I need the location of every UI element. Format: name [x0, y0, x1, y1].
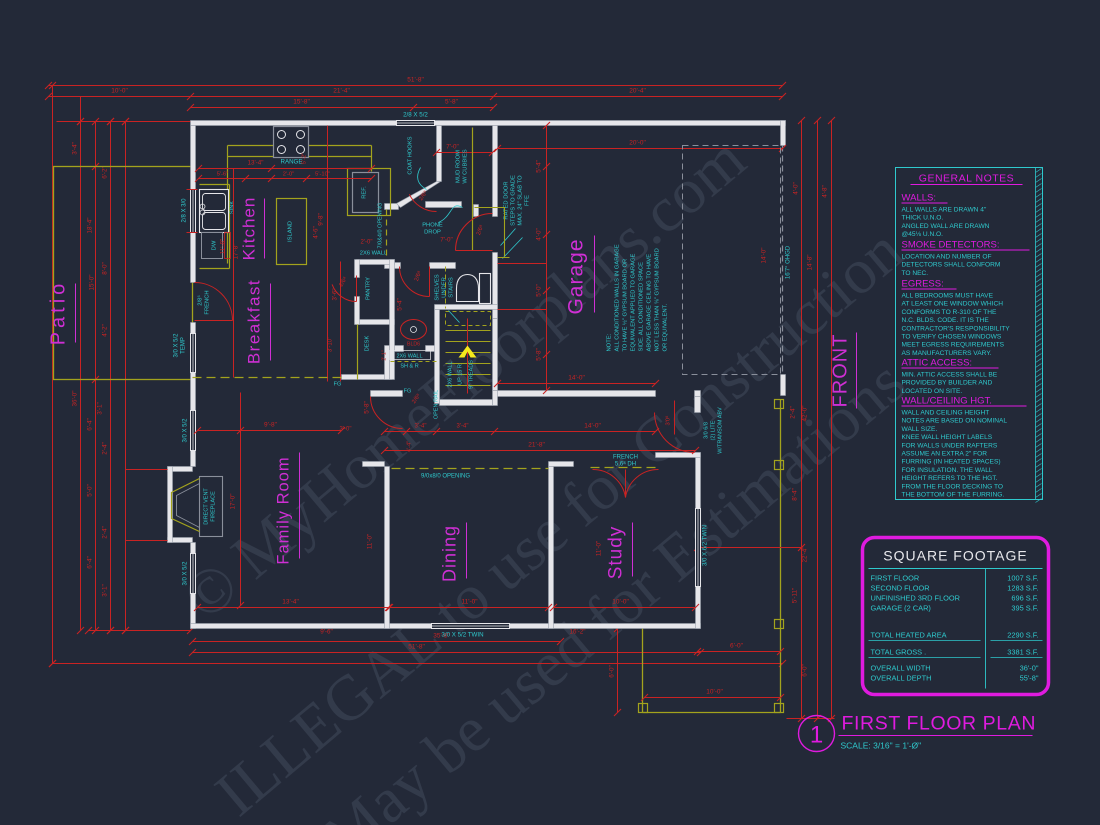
svg-text:TO VERIFY CHOSEN WINDOWS: TO VERIFY CHOSEN WINDOWS [902, 334, 1002, 341]
svg-text:3'-4": 3'-4" [457, 424, 469, 430]
svg-text:2X6 WALL: 2X6 WALL [396, 354, 422, 360]
svg-text:EQUIVALENT APPLIED TO GARAGE: EQUIVALENT APPLIED TO GARAGE [631, 254, 637, 352]
svg-text:9" TREADS: 9" TREADS [469, 360, 475, 389]
svg-text:51'-8": 51'-8" [408, 644, 425, 651]
svg-text:5'-8": 5'-8" [536, 348, 543, 361]
svg-text:2'-4": 2'-4" [102, 526, 109, 539]
svg-text:4'-8": 4'-8" [822, 185, 829, 198]
svg-text:EGRESS:: EGRESS: [902, 279, 944, 290]
svg-text:NOT LESS THAN ⅝" GYPSUM BOARD: NOT LESS THAN ⅝" GYPSUM BOARD [655, 248, 661, 351]
svg-text:5'-6": 5'-6" [217, 172, 229, 178]
svg-text:3/0 X 5/2: 3/0 X 5/2 [183, 418, 189, 443]
svg-text:(2) LITE: (2) LITE [711, 420, 717, 440]
svg-text:55'-8": 55'-8" [1020, 674, 1039, 683]
svg-text:9'-6": 9'-6" [320, 629, 333, 636]
svg-text:4'-6": 4'-6" [313, 226, 320, 239]
svg-text:ANGLED WALL ARE DRAWN: ANGLED WALL ARE DRAWN [902, 223, 990, 230]
svg-text:CONTRACTOR'S RESPONSIBILITY: CONTRACTOR'S RESPONSIBILITY [902, 325, 1011, 332]
svg-text:GENERAL NOTES: GENERAL NOTES [919, 173, 1014, 185]
svg-text:COAT HOOKS: COAT HOOKS [408, 136, 414, 174]
svg-text:11'-0": 11'-0" [461, 599, 478, 606]
svg-text:FRONT: FRONT [830, 334, 852, 408]
svg-text:FIRST FLOOR: FIRST FLOOR [871, 574, 920, 583]
svg-text:9'-8": 9'-8" [318, 213, 325, 226]
svg-text:6'-4": 6'-4" [87, 418, 94, 431]
svg-text:3'-4": 3'-4" [72, 142, 79, 155]
svg-text:TO NEC.: TO NEC. [902, 270, 929, 277]
svg-text:OR EQUIVALENT.: OR EQUIVALENT. [663, 304, 669, 352]
svg-text:7/0&4/0 OPENING: 7/0&4/0 OPENING [378, 203, 384, 249]
svg-text:16'7° OHGD: 16'7° OHGD [786, 245, 792, 279]
svg-text:UP 15 R: UP 15 R [458, 364, 464, 385]
svg-text:LOCATION AND NUMBER OF: LOCATION AND NUMBER OF [902, 254, 992, 261]
svg-text:LOCATED ON SITE.: LOCATED ON SITE. [902, 388, 963, 395]
svg-text:1283 S.F.: 1283 S.F. [1007, 584, 1038, 593]
svg-text:17'-8": 17'-8" [233, 243, 240, 259]
svg-text:THICK U.N.O.: THICK U.N.O. [902, 215, 944, 222]
svg-text:6'-0": 6'-0" [730, 643, 744, 650]
svg-text:DETECTORS SHALL CONFORM: DETECTORS SHALL CONFORM [902, 262, 1001, 269]
svg-text:395 S.F.: 395 S.F. [1011, 604, 1038, 613]
svg-text:HEIGHT REFERS TO THE HGT.: HEIGHT REFERS TO THE HGT. [902, 475, 998, 482]
svg-text:4'-4": 4'-4" [407, 441, 413, 453]
svg-text:2290 S.F.: 2290 S.F. [1007, 631, 1038, 640]
svg-text:OPEN RAIL: OPEN RAIL [434, 390, 440, 419]
svg-text:SECOND FLOOR: SECOND FLOOR [871, 584, 930, 593]
svg-text:15'-8": 15'-8" [293, 99, 310, 106]
svg-text:STEPS TO GRADE: STEPS TO GRADE [511, 175, 517, 226]
svg-text:3/0 X 5/2: 3/0 X 5/2 [183, 561, 189, 586]
svg-text:TO HAVE ½" GYPSUM BOARD OR: TO HAVE ½" GYPSUM BOARD OR [622, 259, 629, 352]
svg-text:NOTES ARE BASED ON NOMINAL: NOTES ARE BASED ON NOMINAL [902, 418, 1008, 425]
svg-text:10'-0": 10'-0" [612, 599, 629, 606]
svg-text:51'-8": 51'-8" [407, 77, 424, 84]
svg-text:8'-0": 8'-0" [102, 262, 109, 275]
svg-text:MUD ROOM: MUD ROOM [456, 150, 462, 183]
svg-text:SINK: SINK [230, 201, 236, 215]
svg-text:PROVIDED BY BUILDER AND: PROVIDED BY BUILDER AND [902, 380, 993, 387]
svg-text:Garage: Garage [565, 238, 588, 314]
svg-text:6'-0": 6'-0" [802, 664, 809, 677]
svg-text:8'-4": 8'-4" [792, 488, 799, 501]
svg-text:5'-8": 5'-8" [445, 99, 459, 106]
svg-text:FROM THE FLOOR DECKING TO: FROM THE FLOOR DECKING TO [902, 483, 1003, 490]
svg-text:SHELVES: SHELVES [435, 274, 441, 300]
svg-text:DESK: DESK [365, 335, 371, 351]
svg-text:FFE: FFE [525, 195, 531, 206]
svg-text:2X6 WALL: 2X6 WALL [360, 251, 388, 257]
svg-text:DW: DW [212, 240, 218, 250]
svg-text:5'-11": 5'-11" [792, 588, 799, 604]
svg-text:14'-0": 14'-0" [568, 375, 585, 382]
svg-text:AT LEAST ONE WINDOW WHICH: AT LEAST ONE WINDOW WHICH [902, 301, 1004, 308]
svg-text:FIREPLACE: FIREPLACE [211, 491, 217, 522]
svg-text:5'-0": 5'-0" [536, 284, 543, 297]
svg-text:ABOVE GARAGE CEILING TO HAVE: ABOVE GARAGE CEILING TO HAVE [647, 254, 653, 352]
svg-text:11'-0": 11'-0" [596, 541, 603, 557]
svg-text:11'-8": 11'-8" [220, 239, 227, 255]
svg-text:3'-10": 3'-10" [328, 337, 334, 352]
svg-text:3/0 X 5/2: 3/0 X 5/2 [174, 333, 180, 358]
svg-text:13'-4": 13'-4" [247, 160, 263, 167]
svg-text:Family Room: Family Room [275, 456, 293, 564]
svg-text:2X6 WALL: 2X6 WALL [448, 361, 454, 387]
svg-text:CONFORMS TO R-310 OF THE: CONFORMS TO R-310 OF THE [902, 309, 997, 316]
svg-text:ALL CONDITIONED WALLS IN GARAG: ALL CONDITIONED WALLS IN GARAGE [615, 244, 621, 351]
svg-text:PHONE: PHONE [422, 223, 443, 229]
svg-text:5'-4": 5'-4" [536, 160, 543, 173]
svg-text:16'-2": 16'-2" [569, 629, 585, 636]
svg-text:42'-0": 42'-0" [802, 405, 809, 421]
svg-text:WALLS:: WALLS: [902, 193, 937, 204]
svg-text:TOTAL GROSS .: TOTAL GROSS . [871, 648, 927, 657]
svg-text:BLD6: BLD6 [407, 342, 420, 348]
svg-text:MAX. 24" SLAB TO: MAX. 24" SLAB TO [518, 175, 524, 226]
svg-text:FOR INSULATION. THE WALL: FOR INSULATION. THE WALL [902, 467, 993, 474]
svg-text:NOTE:: NOTE: [607, 333, 613, 351]
svg-text:WALL/CEILING HGT.: WALL/CEILING HGT. [902, 396, 992, 407]
svg-text:OVERALL DEPTH: OVERALL DEPTH [871, 674, 932, 683]
svg-text:UNDER: UNDER [442, 277, 448, 298]
svg-text:36'-0": 36'-0" [1020, 664, 1039, 673]
svg-text:7'-0": 7'-0" [446, 144, 459, 151]
svg-text:3'0⁸: 3'0⁸ [665, 415, 672, 426]
svg-text:UNFINISHED 3RD FLOOR: UNFINISHED 3RD FLOOR [871, 594, 961, 603]
svg-text:ISLAND: ISLAND [288, 221, 294, 242]
svg-text:DIRECT VENT: DIRECT VENT [204, 488, 210, 525]
svg-text:5'-4": 5'-4" [397, 298, 404, 311]
svg-text:3'-1": 3'-1" [102, 584, 109, 597]
svg-text:W/ CUBBIES: W/ CUBBIES [463, 149, 469, 183]
svg-text:13'-4": 13'-4" [282, 599, 299, 606]
svg-text:FRENCH: FRENCH [205, 290, 211, 314]
svg-text:MIN. ATTIC ACCESS SHALL BE: MIN. ATTIC ACCESS SHALL BE [902, 372, 998, 379]
svg-text:3/0 X 6/2 TWIN: 3/0 X 6/2 TWIN [703, 525, 709, 566]
svg-text:15'-0": 15'-0" [89, 274, 96, 290]
svg-text:Study: Study [606, 526, 627, 580]
svg-text:5'-2": 5'-2" [302, 153, 308, 165]
svg-text:22'-4": 22'-4" [802, 546, 809, 562]
svg-text:3'-4": 3'-4" [415, 424, 427, 430]
svg-text:WALL SIZE.: WALL SIZE. [902, 426, 938, 433]
svg-text:FOR WALLS UNDER RAFTERS: FOR WALLS UNDER RAFTERS [902, 442, 998, 449]
svg-text:TOTAL HEATED AREA: TOTAL HEATED AREA [871, 631, 947, 640]
svg-text:THE BOTTOM OF THE FURRING.: THE BOTTOM OF THE FURRING. [902, 492, 1005, 499]
svg-text:9/0x8/0 OPENING: 9/0x8/0 OPENING [421, 474, 470, 480]
svg-text:2'-0": 2'-0" [361, 240, 373, 246]
svg-text:DROP: DROP [424, 230, 441, 236]
svg-text:3381 S.F.: 3381 S.F. [1007, 648, 1038, 657]
svg-text:6'-2": 6'-2" [102, 166, 109, 179]
svg-text:FG: FG [404, 389, 412, 395]
svg-text:6'-0": 6'-0" [609, 665, 616, 678]
svg-text:2'-1": 2'-1" [382, 350, 388, 360]
svg-text:21'-8": 21'-8" [528, 442, 545, 449]
svg-text:PANTRY: PANTRY [366, 277, 372, 300]
svg-text:MEET EGRESS REQUIREMENTS: MEET EGRESS REQUIREMENTS [902, 342, 1005, 349]
svg-text:2'-4": 2'-4" [790, 406, 797, 419]
svg-text:10'-0": 10'-0" [706, 689, 723, 696]
svg-text:ASSUME AN EXTRA 2" FOR: ASSUME AN EXTRA 2" FOR [902, 451, 988, 458]
svg-text:17'-0": 17'-0" [230, 493, 237, 509]
svg-text:STAIRS: STAIRS [449, 277, 455, 298]
svg-text:6'-4": 6'-4" [87, 556, 94, 569]
svg-text:4'-0": 4'-0" [793, 182, 800, 195]
svg-text:2/8 X 3/0: 2/8 X 3/0 [182, 198, 188, 223]
svg-text:5'-0": 5'-0" [87, 484, 94, 497]
svg-text:REF.: REF. [362, 186, 368, 199]
svg-text:Kitchen: Kitchen [240, 197, 259, 261]
svg-text:20'-4": 20'-4" [629, 88, 646, 95]
svg-text:SQUARE FOOTAGE: SQUARE FOOTAGE [883, 548, 1027, 564]
svg-text:FURRING (IN HEATED SPACES): FURRING (IN HEATED SPACES) [902, 459, 1001, 466]
svg-text:FRENCH: FRENCH [613, 455, 638, 461]
svg-text:Patio: Patio [48, 280, 70, 346]
svg-text:2'-0": 2'-0" [283, 172, 295, 178]
svg-text:FG: FG [334, 382, 342, 388]
svg-text:20'-0": 20'-0" [629, 140, 646, 147]
svg-text:3'-0": 3'-0" [340, 427, 352, 433]
svg-text:2/8 X 5/2: 2/8 X 5/2 [403, 112, 428, 119]
svg-text:SH & R: SH & R [400, 364, 418, 370]
svg-text:696 S.F.: 696 S.F. [1011, 594, 1038, 603]
svg-text:ATTIC ACCESS:: ATTIC ACCESS: [902, 358, 973, 369]
svg-text:@45⅛ U.N.O.: @45⅛ U.N.O. [902, 231, 944, 238]
svg-text:AS MANUFACTURERS VARY.: AS MANUFACTURERS VARY. [902, 350, 992, 357]
svg-text:TEMP: TEMP [181, 337, 187, 354]
svg-text:N.C. BLDS. CODE. IT IS THE: N.C. BLDS. CODE. IT IS THE [902, 317, 990, 324]
svg-text:ALL BEDROOMS MUST HAVE: ALL BEDROOMS MUST HAVE [902, 293, 994, 300]
svg-text:KNEE WALL HEIGHT LABELS: KNEE WALL HEIGHT LABELS [902, 434, 993, 441]
svg-text:1007 S.F.: 1007 S.F. [1007, 574, 1038, 583]
svg-text:2/8⁶: 2/8⁶ [197, 295, 204, 306]
svg-text:2'-4": 2'-4" [102, 442, 109, 455]
svg-text:FIRST FLOOR PLAN: FIRST FLOOR PLAN [842, 713, 1037, 735]
svg-text:5'-8": 5'-8" [364, 401, 371, 414]
svg-text:3'-1": 3'-1" [97, 402, 104, 415]
svg-text:ALL WALLS ARE DRAWN 4": ALL WALLS ARE DRAWN 4" [902, 207, 987, 214]
svg-text:WALL AND CEILING HEIGHT: WALL AND CEILING HEIGHT [902, 410, 990, 417]
svg-text:W/TRANSOM ABV: W/TRANSOM ABV [718, 407, 724, 454]
svg-text:7'-0": 7'-0" [440, 237, 453, 244]
svg-text:1: 1 [810, 722, 823, 749]
svg-text:4'-0": 4'-0" [536, 228, 543, 241]
svg-text:GARAGE (2 CAR): GARAGE (2 CAR) [871, 604, 931, 613]
svg-text:21'-4": 21'-4" [333, 88, 350, 95]
svg-text:10'-0": 10'-0" [111, 88, 128, 95]
svg-text:5,6⁸ DH: 5,6⁸ DH [615, 461, 636, 468]
svg-text:SCALE: 3/16" = 1'-Ø": SCALE: 3/16" = 1'-Ø" [841, 741, 922, 751]
svg-text:3/0 6/8: 3/0 6/8 [704, 422, 710, 439]
svg-text:4'-2": 4'-2" [102, 324, 109, 337]
svg-text:Dining: Dining [440, 525, 460, 582]
svg-text:SMOKE DETECTORS:: SMOKE DETECTORS: [902, 240, 1000, 251]
svg-text:3/0 X 5/2 TWIN: 3/0 X 5/2 TWIN [441, 632, 483, 639]
svg-text:14'-0": 14'-0" [584, 423, 601, 430]
svg-text:OVERALL WIDTH: OVERALL WIDTH [871, 664, 931, 673]
svg-text:9'-8": 9'-8" [264, 422, 278, 429]
svg-text:14'-8": 14'-8" [807, 254, 814, 270]
svg-text:Breakfast: Breakfast [245, 279, 264, 364]
svg-text:18'-4": 18'-4" [87, 217, 94, 233]
svg-text:SIDE. ALL CONDITIONED SPACE: SIDE. ALL CONDITIONED SPACE [639, 262, 645, 352]
svg-text:11'-0": 11'-0" [367, 534, 374, 550]
svg-text:14'-0": 14'-0" [761, 247, 768, 263]
svg-text:36'-0": 36'-0" [72, 390, 79, 406]
svg-text:RANGE: RANGE [280, 159, 302, 166]
